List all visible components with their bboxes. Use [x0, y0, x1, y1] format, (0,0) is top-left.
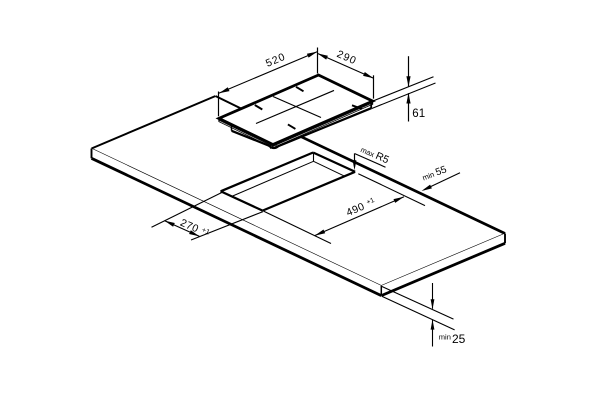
- svg-text:min: min: [439, 332, 451, 341]
- svg-text:61: 61: [412, 108, 425, 120]
- svg-text:25: 25: [452, 332, 466, 346]
